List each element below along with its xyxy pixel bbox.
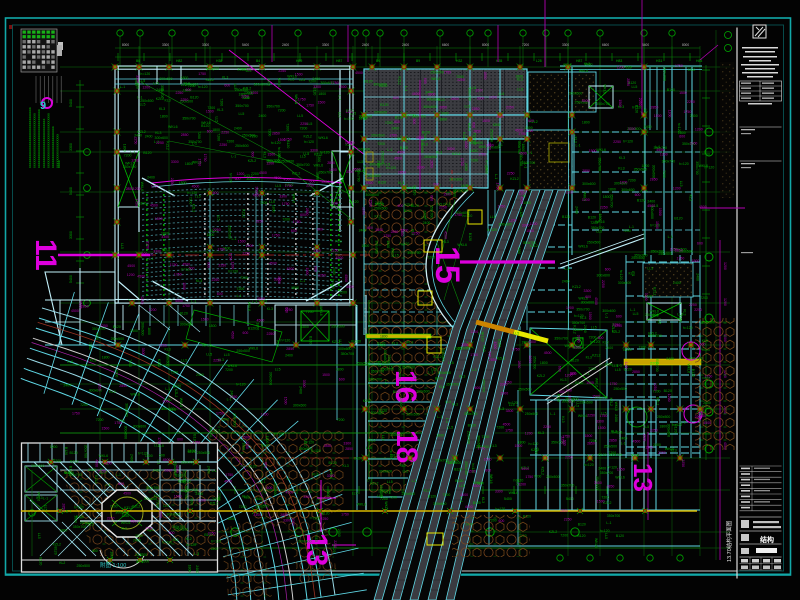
svg-text:4500: 4500 xyxy=(460,493,468,497)
svg-text:3300: 3300 xyxy=(302,380,306,388)
svg-text:250x500: 250x500 xyxy=(374,206,387,210)
svg-text:KL3: KL3 xyxy=(436,150,442,154)
svg-text:B120: B120 xyxy=(364,80,372,84)
svg-text:7200: 7200 xyxy=(377,142,385,146)
svg-text:1200: 1200 xyxy=(624,362,628,370)
svg-text:350x700: 350x700 xyxy=(468,87,472,100)
svg-text:h=120: h=120 xyxy=(198,85,208,89)
svg-text:1500: 1500 xyxy=(246,244,254,248)
svg-text:h=120: h=120 xyxy=(519,207,523,217)
svg-text:1800: 1800 xyxy=(380,335,388,339)
svg-text:300x600: 300x600 xyxy=(473,132,477,145)
svg-text:600: 600 xyxy=(367,226,373,230)
svg-text:1500: 1500 xyxy=(182,282,186,290)
svg-text:4500: 4500 xyxy=(253,194,261,198)
svg-text:11: 11 xyxy=(29,239,62,271)
svg-text:350x700: 350x700 xyxy=(182,116,195,120)
svg-text:1500: 1500 xyxy=(305,268,309,276)
svg-text:1800: 1800 xyxy=(209,324,217,328)
svg-text:7200: 7200 xyxy=(268,129,272,137)
svg-text:KL3: KL3 xyxy=(538,431,544,435)
svg-text:B120: B120 xyxy=(329,461,337,465)
svg-text:2400: 2400 xyxy=(130,329,138,333)
svg-text:1800: 1800 xyxy=(60,529,68,533)
svg-text:2250: 2250 xyxy=(318,274,326,278)
svg-text:WKL6: WKL6 xyxy=(687,364,691,374)
svg-text:2850: 2850 xyxy=(119,384,127,388)
svg-text:1800: 1800 xyxy=(102,355,110,359)
svg-text:300x600: 300x600 xyxy=(141,322,145,335)
svg-text:1800: 1800 xyxy=(478,145,486,149)
svg-text:7200: 7200 xyxy=(317,154,321,162)
svg-text:7200: 7200 xyxy=(197,131,201,139)
svg-text:7200: 7200 xyxy=(588,367,596,371)
svg-text:L-1: L-1 xyxy=(617,363,622,367)
svg-text:1750: 1750 xyxy=(610,382,618,386)
svg-text:350x700: 350x700 xyxy=(596,102,609,106)
svg-text:2400: 2400 xyxy=(598,466,606,470)
svg-text:1750: 1750 xyxy=(383,234,391,238)
svg-text:300x600: 300x600 xyxy=(365,193,378,197)
svg-text:H32: H32 xyxy=(456,59,462,63)
svg-text:B120: B120 xyxy=(588,216,596,220)
svg-text:7200: 7200 xyxy=(339,290,347,294)
svg-text:B120: B120 xyxy=(571,359,579,363)
svg-text:7200: 7200 xyxy=(53,459,61,463)
svg-text:2850: 2850 xyxy=(560,509,568,513)
svg-text:600: 600 xyxy=(118,482,124,486)
svg-text:LL5: LL5 xyxy=(217,215,221,221)
svg-text:1800: 1800 xyxy=(540,361,548,365)
svg-text:附图 1:100: 附图 1:100 xyxy=(100,561,126,569)
svg-text:2850: 2850 xyxy=(472,107,480,111)
svg-text:1500: 1500 xyxy=(526,229,534,233)
svg-text:KZL2: KZL2 xyxy=(609,398,613,406)
svg-text:LL5: LL5 xyxy=(647,266,653,270)
svg-text:KZL2: KZL2 xyxy=(648,332,656,336)
svg-text:LL5: LL5 xyxy=(448,361,454,365)
svg-text:WKL6: WKL6 xyxy=(615,475,625,479)
svg-text:KL3: KL3 xyxy=(242,495,248,499)
svg-text:B120: B120 xyxy=(53,547,57,555)
svg-text:300x600: 300x600 xyxy=(433,502,446,506)
svg-text:2850: 2850 xyxy=(391,230,399,234)
svg-text:L-1: L-1 xyxy=(384,380,388,385)
svg-text:600: 600 xyxy=(207,262,211,268)
svg-text:300x600: 300x600 xyxy=(663,68,667,81)
svg-text:L-1: L-1 xyxy=(472,368,477,372)
svg-text:600: 600 xyxy=(317,228,323,232)
svg-text:7200: 7200 xyxy=(517,246,521,254)
svg-text:KL3: KL3 xyxy=(452,403,458,407)
svg-text:4500: 4500 xyxy=(355,71,363,75)
svg-text:4500: 4500 xyxy=(444,231,448,239)
svg-text:LL5: LL5 xyxy=(120,243,124,249)
svg-text:3300: 3300 xyxy=(277,276,281,284)
svg-text:1200: 1200 xyxy=(660,153,668,157)
svg-text:2850: 2850 xyxy=(607,485,615,489)
svg-text:2250: 2250 xyxy=(133,137,137,145)
svg-text:1750: 1750 xyxy=(306,104,314,108)
svg-text:LL5: LL5 xyxy=(615,368,621,372)
svg-text:2250: 2250 xyxy=(321,517,329,521)
svg-text:h=120: h=120 xyxy=(677,123,681,133)
svg-text:600: 600 xyxy=(213,191,219,195)
svg-text:LL5: LL5 xyxy=(575,401,579,407)
svg-text:600: 600 xyxy=(528,119,534,123)
svg-text:KL3: KL3 xyxy=(155,131,161,135)
svg-text:B120: B120 xyxy=(634,105,638,113)
svg-text:1500: 1500 xyxy=(658,208,662,216)
svg-text:1800: 1800 xyxy=(453,189,457,197)
svg-text:2400: 2400 xyxy=(312,77,320,81)
svg-text:KL3: KL3 xyxy=(400,464,406,468)
svg-text:600: 600 xyxy=(310,179,316,183)
svg-text:600: 600 xyxy=(235,177,241,181)
svg-text:9: 9 xyxy=(40,100,46,112)
svg-text:1750: 1750 xyxy=(285,184,293,188)
svg-text:2850: 2850 xyxy=(582,169,590,173)
svg-text:2400: 2400 xyxy=(282,43,289,47)
svg-text:h=120: h=120 xyxy=(619,270,623,280)
svg-text:350x700: 350x700 xyxy=(610,194,614,207)
svg-text:7200: 7200 xyxy=(631,454,639,458)
svg-text:3300: 3300 xyxy=(495,489,503,493)
svg-text:h=120: h=120 xyxy=(186,543,196,547)
svg-text:600: 600 xyxy=(557,366,561,372)
svg-text:2850: 2850 xyxy=(567,395,571,403)
svg-text:4500: 4500 xyxy=(231,331,235,339)
svg-text:600: 600 xyxy=(291,229,297,233)
svg-text:KZL2: KZL2 xyxy=(572,285,580,289)
svg-text:H82: H82 xyxy=(176,59,182,63)
svg-text:LL5: LL5 xyxy=(363,114,367,120)
svg-text:300x600: 300x600 xyxy=(689,356,702,360)
svg-text:KL3: KL3 xyxy=(109,390,115,394)
svg-text:B120: B120 xyxy=(473,501,481,505)
svg-text:1200: 1200 xyxy=(566,306,574,310)
svg-text:1200: 1200 xyxy=(142,85,150,89)
svg-text:3300: 3300 xyxy=(562,43,569,47)
svg-text:WKL6: WKL6 xyxy=(292,194,296,204)
svg-text:1200: 1200 xyxy=(250,91,258,95)
svg-text:4500: 4500 xyxy=(344,274,348,282)
svg-text:7200: 7200 xyxy=(534,447,538,455)
svg-text:300x600: 300x600 xyxy=(666,424,670,437)
svg-text:2850: 2850 xyxy=(430,160,434,168)
svg-text:2400: 2400 xyxy=(63,383,71,387)
svg-text:600: 600 xyxy=(313,266,317,272)
svg-text:KL3: KL3 xyxy=(439,385,445,389)
svg-text:350x700: 350x700 xyxy=(73,525,86,529)
svg-text:KZL2: KZL2 xyxy=(592,353,600,357)
svg-text:4500: 4500 xyxy=(224,480,232,484)
svg-text:h=120: h=120 xyxy=(187,191,197,195)
svg-text:3300: 3300 xyxy=(464,141,468,149)
svg-text:LL5: LL5 xyxy=(37,533,41,539)
svg-text:2250: 2250 xyxy=(333,540,337,548)
svg-text:350x700: 350x700 xyxy=(609,453,622,457)
svg-text:h=120: h=120 xyxy=(612,430,622,434)
svg-text:h=120: h=120 xyxy=(281,339,291,343)
svg-text:4500: 4500 xyxy=(493,342,497,350)
svg-text:KZL2: KZL2 xyxy=(124,506,132,510)
svg-text:LL5: LL5 xyxy=(67,360,73,364)
svg-text:2850: 2850 xyxy=(489,358,497,362)
svg-text:1750: 1750 xyxy=(470,353,478,357)
svg-text:2250: 2250 xyxy=(670,248,678,252)
svg-text:600: 600 xyxy=(472,122,476,128)
svg-text:L-1: L-1 xyxy=(585,372,590,376)
svg-text:h=120: h=120 xyxy=(683,326,693,330)
svg-text:3300: 3300 xyxy=(522,223,530,227)
svg-text:250x500: 250x500 xyxy=(518,388,531,392)
svg-text:2400: 2400 xyxy=(562,280,570,284)
svg-text:1750: 1750 xyxy=(192,441,200,445)
svg-text:LL5: LL5 xyxy=(677,313,683,317)
svg-text:KL3: KL3 xyxy=(263,152,267,158)
svg-text:KL3: KL3 xyxy=(619,156,625,160)
svg-text:4500: 4500 xyxy=(582,99,590,103)
svg-text:B120: B120 xyxy=(454,467,462,471)
svg-text:600: 600 xyxy=(700,342,706,346)
svg-text:1500: 1500 xyxy=(654,114,662,118)
svg-text:250x500: 250x500 xyxy=(235,88,248,92)
svg-text:1500: 1500 xyxy=(238,240,246,244)
svg-text:KZL2: KZL2 xyxy=(563,63,571,67)
svg-text:KL3: KL3 xyxy=(490,444,496,448)
svg-text:KZL2: KZL2 xyxy=(452,152,460,156)
svg-text:2250: 2250 xyxy=(506,105,514,109)
svg-text:1800: 1800 xyxy=(605,362,613,366)
svg-text:h=120: h=120 xyxy=(140,72,150,76)
svg-text:4500: 4500 xyxy=(703,421,711,425)
svg-text:2850: 2850 xyxy=(632,370,640,374)
svg-text:4500: 4500 xyxy=(397,150,405,154)
svg-text:1200: 1200 xyxy=(525,431,533,435)
svg-text:600: 600 xyxy=(433,182,439,186)
svg-text:4500: 4500 xyxy=(145,253,153,257)
svg-text:KL3: KL3 xyxy=(407,341,413,345)
svg-text:2250: 2250 xyxy=(100,324,108,328)
svg-text:7200: 7200 xyxy=(300,126,308,130)
svg-text:4500: 4500 xyxy=(515,129,523,133)
svg-text:300x600: 300x600 xyxy=(618,281,631,285)
svg-text:2850: 2850 xyxy=(473,130,481,134)
svg-text:4500: 4500 xyxy=(346,285,354,289)
svg-text:300x600: 300x600 xyxy=(31,464,44,468)
svg-text:LL5: LL5 xyxy=(632,85,638,89)
svg-text:L-1: L-1 xyxy=(629,225,634,229)
svg-text:1500: 1500 xyxy=(318,100,326,104)
svg-text:B120: B120 xyxy=(38,557,42,565)
svg-text:2400: 2400 xyxy=(647,200,655,204)
svg-text:B9: B9 xyxy=(416,59,420,63)
svg-text:KL3: KL3 xyxy=(159,107,165,111)
svg-text:KL3: KL3 xyxy=(147,528,153,532)
svg-text:2400: 2400 xyxy=(461,184,469,188)
svg-text:1200: 1200 xyxy=(528,355,532,363)
svg-text:250x500: 250x500 xyxy=(438,371,451,375)
svg-text:h=120: h=120 xyxy=(349,200,359,204)
svg-text:600: 600 xyxy=(251,152,255,158)
svg-text:1750: 1750 xyxy=(284,138,292,142)
svg-text:h=120: h=120 xyxy=(304,140,314,144)
svg-text:350x700: 350x700 xyxy=(146,486,159,490)
svg-text:4500: 4500 xyxy=(104,462,112,466)
svg-text:WKL6: WKL6 xyxy=(384,501,388,511)
svg-text:600: 600 xyxy=(339,378,345,382)
svg-text:1750: 1750 xyxy=(114,421,122,425)
svg-text:L-1: L-1 xyxy=(237,294,242,298)
svg-text:600: 600 xyxy=(267,486,273,490)
svg-text:7200: 7200 xyxy=(240,276,248,280)
svg-text:KZL2: KZL2 xyxy=(433,355,441,359)
svg-text:600: 600 xyxy=(598,336,604,340)
svg-text:KL3: KL3 xyxy=(561,416,565,422)
svg-text:1200: 1200 xyxy=(457,78,465,82)
svg-text:1750: 1750 xyxy=(341,513,349,517)
svg-text:xxxxxxxxxxxxxxxxxxxxxxxxxx: xxxxxxxxxxxxxxxxxxxxxxxxxx xyxy=(42,119,46,168)
svg-text:2250: 2250 xyxy=(218,264,226,268)
svg-text:350x700: 350x700 xyxy=(607,514,620,518)
svg-text:600: 600 xyxy=(563,440,567,446)
svg-text:5400: 5400 xyxy=(642,43,649,47)
svg-text:1750: 1750 xyxy=(460,158,464,166)
svg-text:LL5: LL5 xyxy=(490,215,496,219)
svg-text:1750: 1750 xyxy=(495,183,499,191)
svg-text:1800: 1800 xyxy=(227,517,235,521)
svg-text:300x600: 300x600 xyxy=(383,350,387,363)
svg-text:2250: 2250 xyxy=(212,278,220,282)
svg-text:2250: 2250 xyxy=(146,241,150,249)
svg-text:KZL2: KZL2 xyxy=(166,141,170,149)
svg-text:2400: 2400 xyxy=(464,163,468,171)
svg-text:2250: 2250 xyxy=(613,140,621,144)
svg-text:350x700: 350x700 xyxy=(160,85,164,98)
svg-text:300x600: 300x600 xyxy=(115,511,128,515)
svg-text:2250: 2250 xyxy=(208,531,216,535)
svg-text:4500: 4500 xyxy=(394,156,402,160)
svg-text:LL5: LL5 xyxy=(465,104,471,108)
svg-text:B120: B120 xyxy=(667,88,675,92)
svg-text:LL5: LL5 xyxy=(445,400,451,404)
svg-text:2850: 2850 xyxy=(164,468,172,472)
svg-text:1800: 1800 xyxy=(210,547,218,551)
svg-text:2400: 2400 xyxy=(332,267,336,275)
svg-text:2250: 2250 xyxy=(600,205,608,209)
svg-text:LL5: LL5 xyxy=(297,114,303,118)
svg-text:600: 600 xyxy=(679,135,685,139)
svg-text:h=120: h=120 xyxy=(495,507,505,511)
svg-text:4500: 4500 xyxy=(521,467,529,471)
svg-text:1750: 1750 xyxy=(498,205,506,209)
svg-text:1500: 1500 xyxy=(155,217,163,221)
svg-text:1200: 1200 xyxy=(530,222,538,226)
svg-text:250x500: 250x500 xyxy=(80,521,93,525)
svg-text:3300: 3300 xyxy=(279,195,287,199)
svg-text:13: 13 xyxy=(628,463,658,492)
svg-text:B120: B120 xyxy=(616,534,624,538)
svg-text:7200: 7200 xyxy=(80,403,88,407)
svg-text:2400: 2400 xyxy=(673,281,681,285)
svg-text:LL5: LL5 xyxy=(154,444,160,448)
svg-text:4500: 4500 xyxy=(519,152,527,156)
svg-text:2400: 2400 xyxy=(653,443,661,447)
svg-text:LL5: LL5 xyxy=(403,469,409,473)
svg-text:LL5: LL5 xyxy=(658,318,662,324)
svg-text:2400: 2400 xyxy=(423,221,431,225)
svg-text:1800: 1800 xyxy=(688,68,696,72)
svg-text:B120: B120 xyxy=(422,131,430,135)
svg-text:KL3: KL3 xyxy=(222,76,228,80)
svg-text:350x700: 350x700 xyxy=(554,336,567,340)
svg-text:600: 600 xyxy=(207,130,213,134)
svg-text:B120: B120 xyxy=(380,103,388,107)
svg-text:B120: B120 xyxy=(261,443,269,447)
svg-text:1750: 1750 xyxy=(684,110,692,114)
svg-text:h=120: h=120 xyxy=(304,441,314,445)
svg-text:250x500: 250x500 xyxy=(255,504,268,508)
svg-text:350x700: 350x700 xyxy=(84,445,88,458)
svg-text:LL5: LL5 xyxy=(181,359,187,363)
svg-text:300x600: 300x600 xyxy=(370,411,383,415)
svg-text:1800: 1800 xyxy=(301,325,309,329)
svg-text:300x600: 300x600 xyxy=(390,433,403,437)
svg-text:350x700: 350x700 xyxy=(523,241,536,245)
svg-text:B120: B120 xyxy=(377,341,385,345)
svg-text:WKL6: WKL6 xyxy=(319,306,323,316)
svg-text:1750: 1750 xyxy=(217,248,225,252)
svg-text:2400: 2400 xyxy=(188,449,196,453)
svg-text:4500: 4500 xyxy=(594,297,598,305)
svg-text:350x700: 350x700 xyxy=(430,205,434,218)
svg-text:B6: B6 xyxy=(136,59,140,63)
svg-text:WKL6: WKL6 xyxy=(594,538,598,548)
svg-text:300x600: 300x600 xyxy=(581,301,594,305)
svg-text:KZL2: KZL2 xyxy=(162,247,170,251)
svg-text:350x700: 350x700 xyxy=(123,165,136,169)
svg-text:3300: 3300 xyxy=(310,148,318,152)
svg-text:h=120: h=120 xyxy=(274,432,284,436)
svg-text:250x500: 250x500 xyxy=(525,412,538,416)
svg-text:2250: 2250 xyxy=(219,143,227,147)
svg-text:L-1: L-1 xyxy=(550,412,555,416)
svg-text:1800: 1800 xyxy=(582,121,590,125)
svg-text:2850: 2850 xyxy=(439,105,447,109)
svg-text:2250: 2250 xyxy=(681,459,685,467)
svg-text:WKL6: WKL6 xyxy=(489,474,493,484)
svg-text:7200: 7200 xyxy=(639,345,647,349)
svg-text:h=120: h=120 xyxy=(228,269,238,273)
svg-text:2400: 2400 xyxy=(195,492,203,496)
svg-text:2850: 2850 xyxy=(81,304,89,308)
svg-text:3300: 3300 xyxy=(366,181,374,185)
svg-text:4500: 4500 xyxy=(163,458,171,462)
svg-text:L-1: L-1 xyxy=(494,174,498,179)
svg-text:1750: 1750 xyxy=(600,414,608,418)
svg-text:LL5: LL5 xyxy=(337,112,341,118)
svg-text:350x700: 350x700 xyxy=(446,382,459,386)
svg-text:250x500: 250x500 xyxy=(424,155,437,159)
svg-text:L-1: L-1 xyxy=(445,418,449,423)
svg-text:2850: 2850 xyxy=(345,447,353,451)
svg-text:2250: 2250 xyxy=(543,425,551,429)
svg-text:2250: 2250 xyxy=(278,69,286,73)
svg-text:250x500: 250x500 xyxy=(430,71,443,75)
svg-text:3300: 3300 xyxy=(428,93,436,97)
svg-text:3300: 3300 xyxy=(375,228,383,232)
